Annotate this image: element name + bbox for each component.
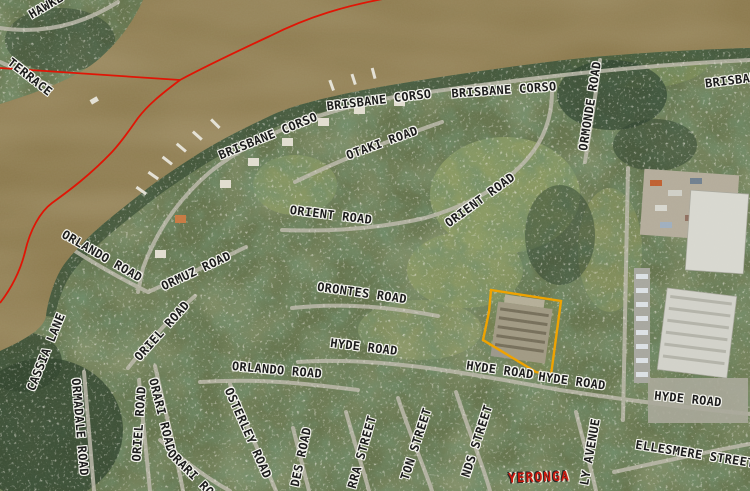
aerial-scene — [0, 0, 750, 491]
map-viewport[interactable]: HAWKETERRACEBRISBANE CORSOBRISBANE CORSO… — [0, 0, 750, 491]
photo-grain — [0, 0, 750, 491]
